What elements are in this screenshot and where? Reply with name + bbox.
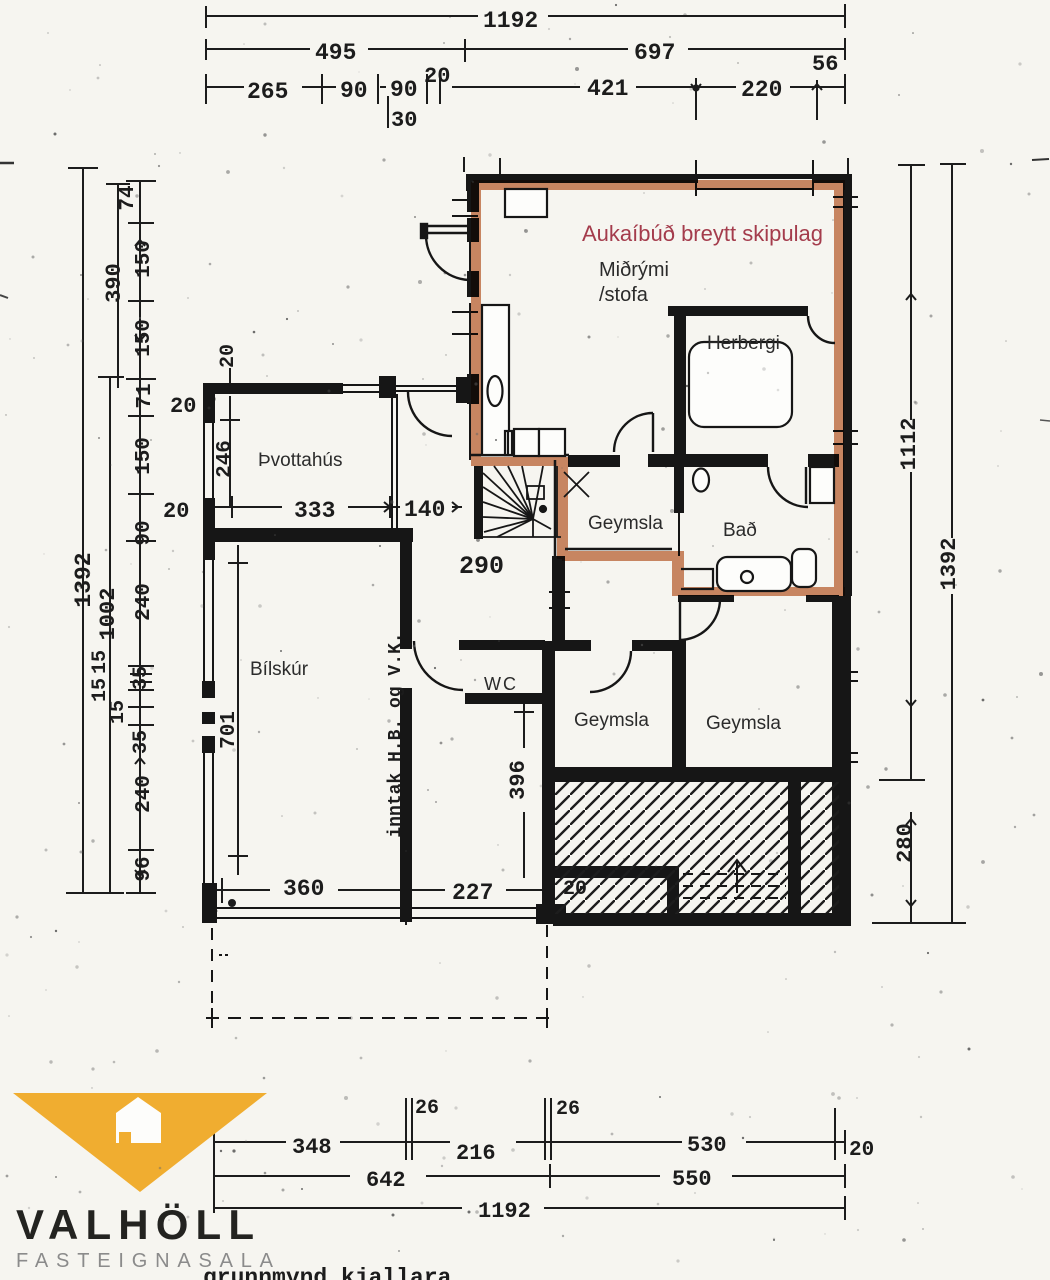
svg-text:697: 697 (634, 40, 675, 66)
svg-text:216: 216 (456, 1141, 496, 1166)
svg-text:VALHÖLL: VALHÖLL (16, 1201, 268, 1248)
svg-text:20: 20 (849, 1139, 874, 1162)
svg-text:1192: 1192 (483, 8, 538, 34)
svg-text:15: 15 (89, 678, 112, 702)
svg-text:150: 150 (133, 437, 156, 475)
svg-text:26: 26 (415, 1097, 439, 1120)
svg-text:240: 240 (133, 583, 156, 621)
svg-text:421: 421 (587, 76, 628, 102)
svg-text:15: 15 (89, 650, 112, 674)
svg-text:Þvottahús: Þvottahús (258, 450, 343, 471)
svg-text:35: 35 (130, 730, 153, 754)
svg-text:WC: WC (484, 674, 518, 694)
svg-text:701: 701 (218, 711, 241, 749)
svg-text:Aukaíbúð breytt skipulag: Aukaíbúð breytt skipulag (582, 221, 823, 246)
svg-text:150: 150 (133, 240, 156, 278)
svg-text:227: 227 (452, 880, 493, 906)
svg-text:240: 240 (133, 775, 156, 813)
svg-text:1392: 1392 (71, 552, 97, 607)
svg-text:26: 26 (556, 1098, 580, 1121)
svg-text:30: 30 (391, 108, 417, 133)
svg-text:Geymsla: Geymsla (588, 513, 663, 534)
svg-text:inntak H.B. og V.K.: inntak H.B. og V.K. (386, 632, 406, 837)
svg-text:Geymsla: Geymsla (574, 710, 649, 731)
svg-text:246: 246 (214, 440, 237, 478)
svg-text:90: 90 (390, 77, 418, 103)
svg-text:20: 20 (563, 878, 587, 901)
svg-text:642: 642 (366, 1168, 406, 1193)
svg-text:396: 396 (506, 760, 531, 800)
svg-text:Herbergi: Herbergi (707, 333, 780, 354)
svg-text:550: 550 (672, 1167, 712, 1192)
svg-text:1112: 1112 (897, 418, 922, 471)
svg-text:74: 74 (117, 185, 140, 210)
svg-text:FASTEIGNASALA: FASTEIGNASALA (16, 1250, 280, 1272)
svg-text:71: 71 (134, 383, 157, 408)
svg-text:1392: 1392 (937, 538, 962, 591)
svg-text:96: 96 (133, 856, 156, 881)
svg-text:140: 140 (404, 497, 445, 523)
svg-text:20: 20 (170, 394, 196, 419)
svg-text:1002: 1002 (96, 588, 121, 641)
svg-text:90: 90 (133, 520, 156, 545)
svg-text:56: 56 (812, 52, 838, 77)
svg-text:290: 290 (459, 552, 504, 581)
svg-text:20: 20 (424, 64, 450, 89)
svg-text:Geymsla: Geymsla (706, 713, 781, 734)
svg-text:Bað: Bað (723, 520, 757, 541)
svg-text:348: 348 (292, 1135, 332, 1160)
svg-text:495: 495 (315, 40, 356, 66)
svg-text:530: 530 (687, 1133, 727, 1158)
svg-text:280: 280 (893, 823, 918, 863)
svg-text:Miðrými: Miðrými (599, 259, 669, 281)
svg-text:35: 35 (130, 666, 153, 690)
svg-text:20: 20 (217, 344, 240, 368)
svg-text:390: 390 (102, 263, 127, 303)
svg-text:/stofa: /stofa (599, 284, 649, 306)
svg-text:90: 90 (340, 78, 368, 104)
svg-text:220: 220 (741, 77, 782, 103)
svg-text:265: 265 (247, 79, 288, 105)
svg-text:150: 150 (133, 319, 156, 357)
svg-text:360: 360 (283, 876, 324, 902)
svg-text:1192: 1192 (478, 1199, 531, 1224)
svg-text:20: 20 (163, 499, 189, 524)
svg-text:Bílskúr: Bílskúr (250, 659, 309, 680)
svg-text:15: 15 (107, 700, 130, 724)
svg-text:333: 333 (294, 498, 335, 524)
